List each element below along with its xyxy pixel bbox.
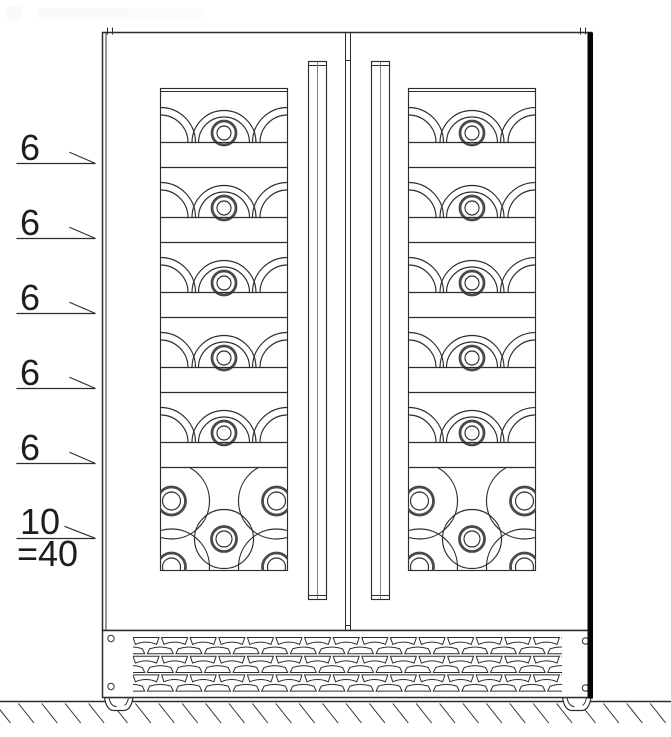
hatch-stroke: [89, 704, 105, 724]
capacity-callouts: 6 6 6 6 6 10 =40: [17, 127, 95, 574]
hatch-stroke: [416, 704, 432, 724]
callout-value: 6: [20, 202, 40, 243]
hatch-stroke: [486, 704, 502, 724]
hatch-stroke: [42, 704, 58, 724]
hatch-stroke: [463, 704, 479, 724]
right-door-handle: [372, 62, 390, 600]
callout-value: 6: [20, 277, 40, 318]
hatch-stroke: [603, 704, 619, 724]
callout-total-value: =40: [17, 533, 78, 574]
hatch-stroke: [159, 704, 175, 724]
capacity-callout-shelf-4: 6: [17, 352, 95, 393]
hatch-stroke: [299, 704, 315, 724]
hatch-stroke: [65, 704, 81, 724]
callout-value: 6: [20, 352, 40, 393]
wine-cooler-capacity-diagram: 6 6 6 6 6 10 =40: [0, 0, 671, 737]
hatch-stroke: [135, 704, 151, 724]
hatch-stroke: [650, 704, 666, 724]
callout-leader: [70, 303, 95, 314]
callout-leader: [70, 378, 95, 389]
hatch-stroke: [0, 704, 11, 724]
hatch-stroke: [18, 704, 34, 724]
left-foot: [105, 698, 134, 711]
capacity-callout-total: =40: [17, 533, 78, 574]
hatch-stroke: [252, 704, 268, 724]
callout-leader: [70, 228, 95, 239]
hatch-stroke: [393, 704, 409, 724]
right-edge-shadow: [588, 33, 594, 699]
callout-leader: [70, 453, 95, 464]
callout-value: 6: [20, 127, 40, 168]
capacity-callout-shelf-3: 6: [17, 277, 95, 318]
screw: [108, 683, 114, 689]
callout-value: 6: [20, 427, 40, 468]
capacity-callout-shelf-1: 6: [17, 127, 95, 168]
hatch-stroke: [323, 704, 339, 724]
hatch-stroke: [229, 704, 245, 724]
left-door-handle: [309, 62, 327, 600]
hatch-stroke: [627, 704, 643, 724]
callout-leader: [70, 153, 95, 164]
right-foot: [563, 698, 592, 711]
hatch-stroke: [533, 704, 549, 724]
capacity-callout-shelf-5: 6: [17, 427, 95, 468]
hatch-stroke: [346, 704, 362, 724]
hatch-stroke: [276, 704, 292, 724]
hatch-stroke: [510, 704, 526, 724]
cabinet-body: [103, 28, 592, 631]
hatch-stroke: [206, 704, 222, 724]
hatch-stroke: [440, 704, 456, 724]
hatch-stroke: [369, 704, 385, 724]
ventilation-grille-panel: [103, 631, 603, 698]
hatch-stroke: [182, 704, 198, 724]
capacity-callout-shelf-2: 6: [17, 202, 95, 243]
screw: [108, 635, 114, 641]
drawing-canvas: 6 6 6 6 6 10 =40: [0, 0, 671, 737]
